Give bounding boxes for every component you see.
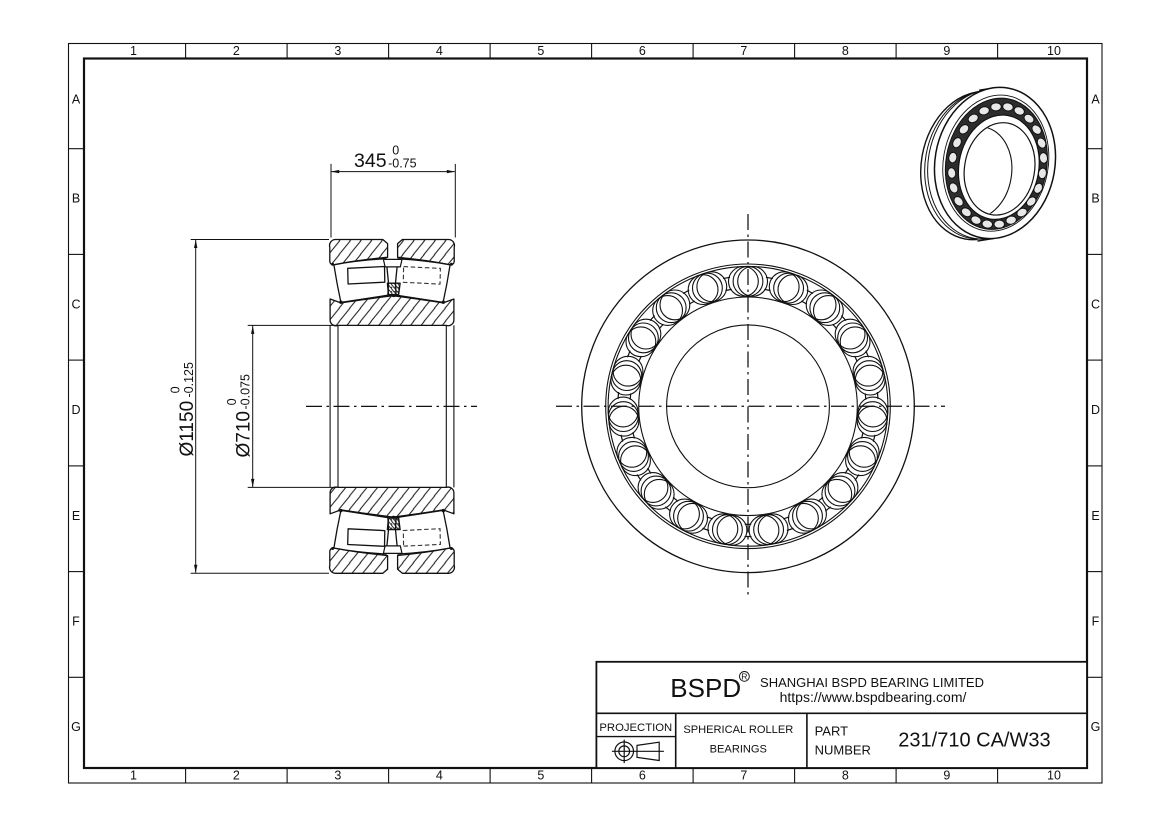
svg-text:E: E	[72, 509, 80, 523]
svg-text:3: 3	[334, 44, 341, 58]
svg-text:A: A	[1091, 93, 1100, 107]
svg-text:SHANGHAI BSPD BEARING LIMITED: SHANGHAI BSPD BEARING LIMITED	[760, 675, 984, 690]
svg-text:4: 4	[436, 44, 443, 58]
svg-text:D: D	[71, 403, 80, 417]
svg-text:9: 9	[943, 769, 950, 783]
svg-text:F: F	[1092, 615, 1100, 629]
svg-text:7: 7	[740, 769, 747, 783]
svg-text:2: 2	[233, 44, 240, 58]
svg-text:B: B	[72, 192, 80, 206]
svg-text:-0.75: -0.75	[388, 157, 417, 171]
svg-text:BEARINGS: BEARINGS	[710, 743, 767, 755]
svg-text:8: 8	[842, 769, 849, 783]
svg-text:G: G	[71, 720, 81, 734]
svg-text:0: 0	[168, 386, 182, 393]
svg-text:NUMBER: NUMBER	[815, 743, 871, 758]
svg-text:0: 0	[225, 398, 239, 405]
svg-text:6: 6	[639, 44, 646, 58]
svg-text:B: B	[1091, 192, 1099, 206]
svg-text:BSPD: BSPD	[670, 673, 741, 703]
svg-text:8: 8	[842, 44, 849, 58]
svg-text:3: 3	[334, 769, 341, 783]
svg-text:G: G	[1091, 720, 1101, 734]
svg-text:5: 5	[537, 769, 544, 783]
svg-text:Ø710: Ø710	[233, 411, 254, 457]
svg-text:6: 6	[639, 769, 646, 783]
svg-text:F: F	[72, 615, 80, 629]
svg-text:231/710 CA/W33: 231/710 CA/W33	[898, 730, 1050, 752]
svg-text:PART: PART	[815, 724, 849, 739]
svg-text:5: 5	[537, 44, 544, 58]
svg-text:10: 10	[1047, 769, 1061, 783]
svg-text:9: 9	[943, 44, 950, 58]
svg-text:PROJECTION: PROJECTION	[599, 722, 672, 734]
svg-text:SPHERICAL ROLLER: SPHERICAL ROLLER	[683, 724, 793, 736]
svg-text:A: A	[72, 93, 81, 107]
svg-text:7: 7	[740, 44, 747, 58]
svg-text:E: E	[1091, 509, 1099, 523]
svg-text:Ø1150: Ø1150	[177, 401, 198, 457]
svg-text:C: C	[71, 297, 80, 311]
svg-text:D: D	[1091, 403, 1100, 417]
svg-text:345: 345	[354, 150, 387, 172]
svg-text:https://www.bspdbearing.com/: https://www.bspdbearing.com/	[780, 689, 967, 705]
svg-text:-0.075: -0.075	[239, 374, 253, 409]
svg-text:0: 0	[392, 144, 399, 158]
svg-text:2: 2	[233, 769, 240, 783]
svg-text:1: 1	[130, 44, 137, 58]
svg-text:10: 10	[1047, 44, 1061, 58]
svg-text:C: C	[1091, 297, 1100, 311]
svg-text:1: 1	[130, 769, 137, 783]
svg-text:R: R	[741, 672, 747, 682]
svg-text:4: 4	[436, 769, 443, 783]
svg-text:-0.125: -0.125	[182, 362, 196, 397]
